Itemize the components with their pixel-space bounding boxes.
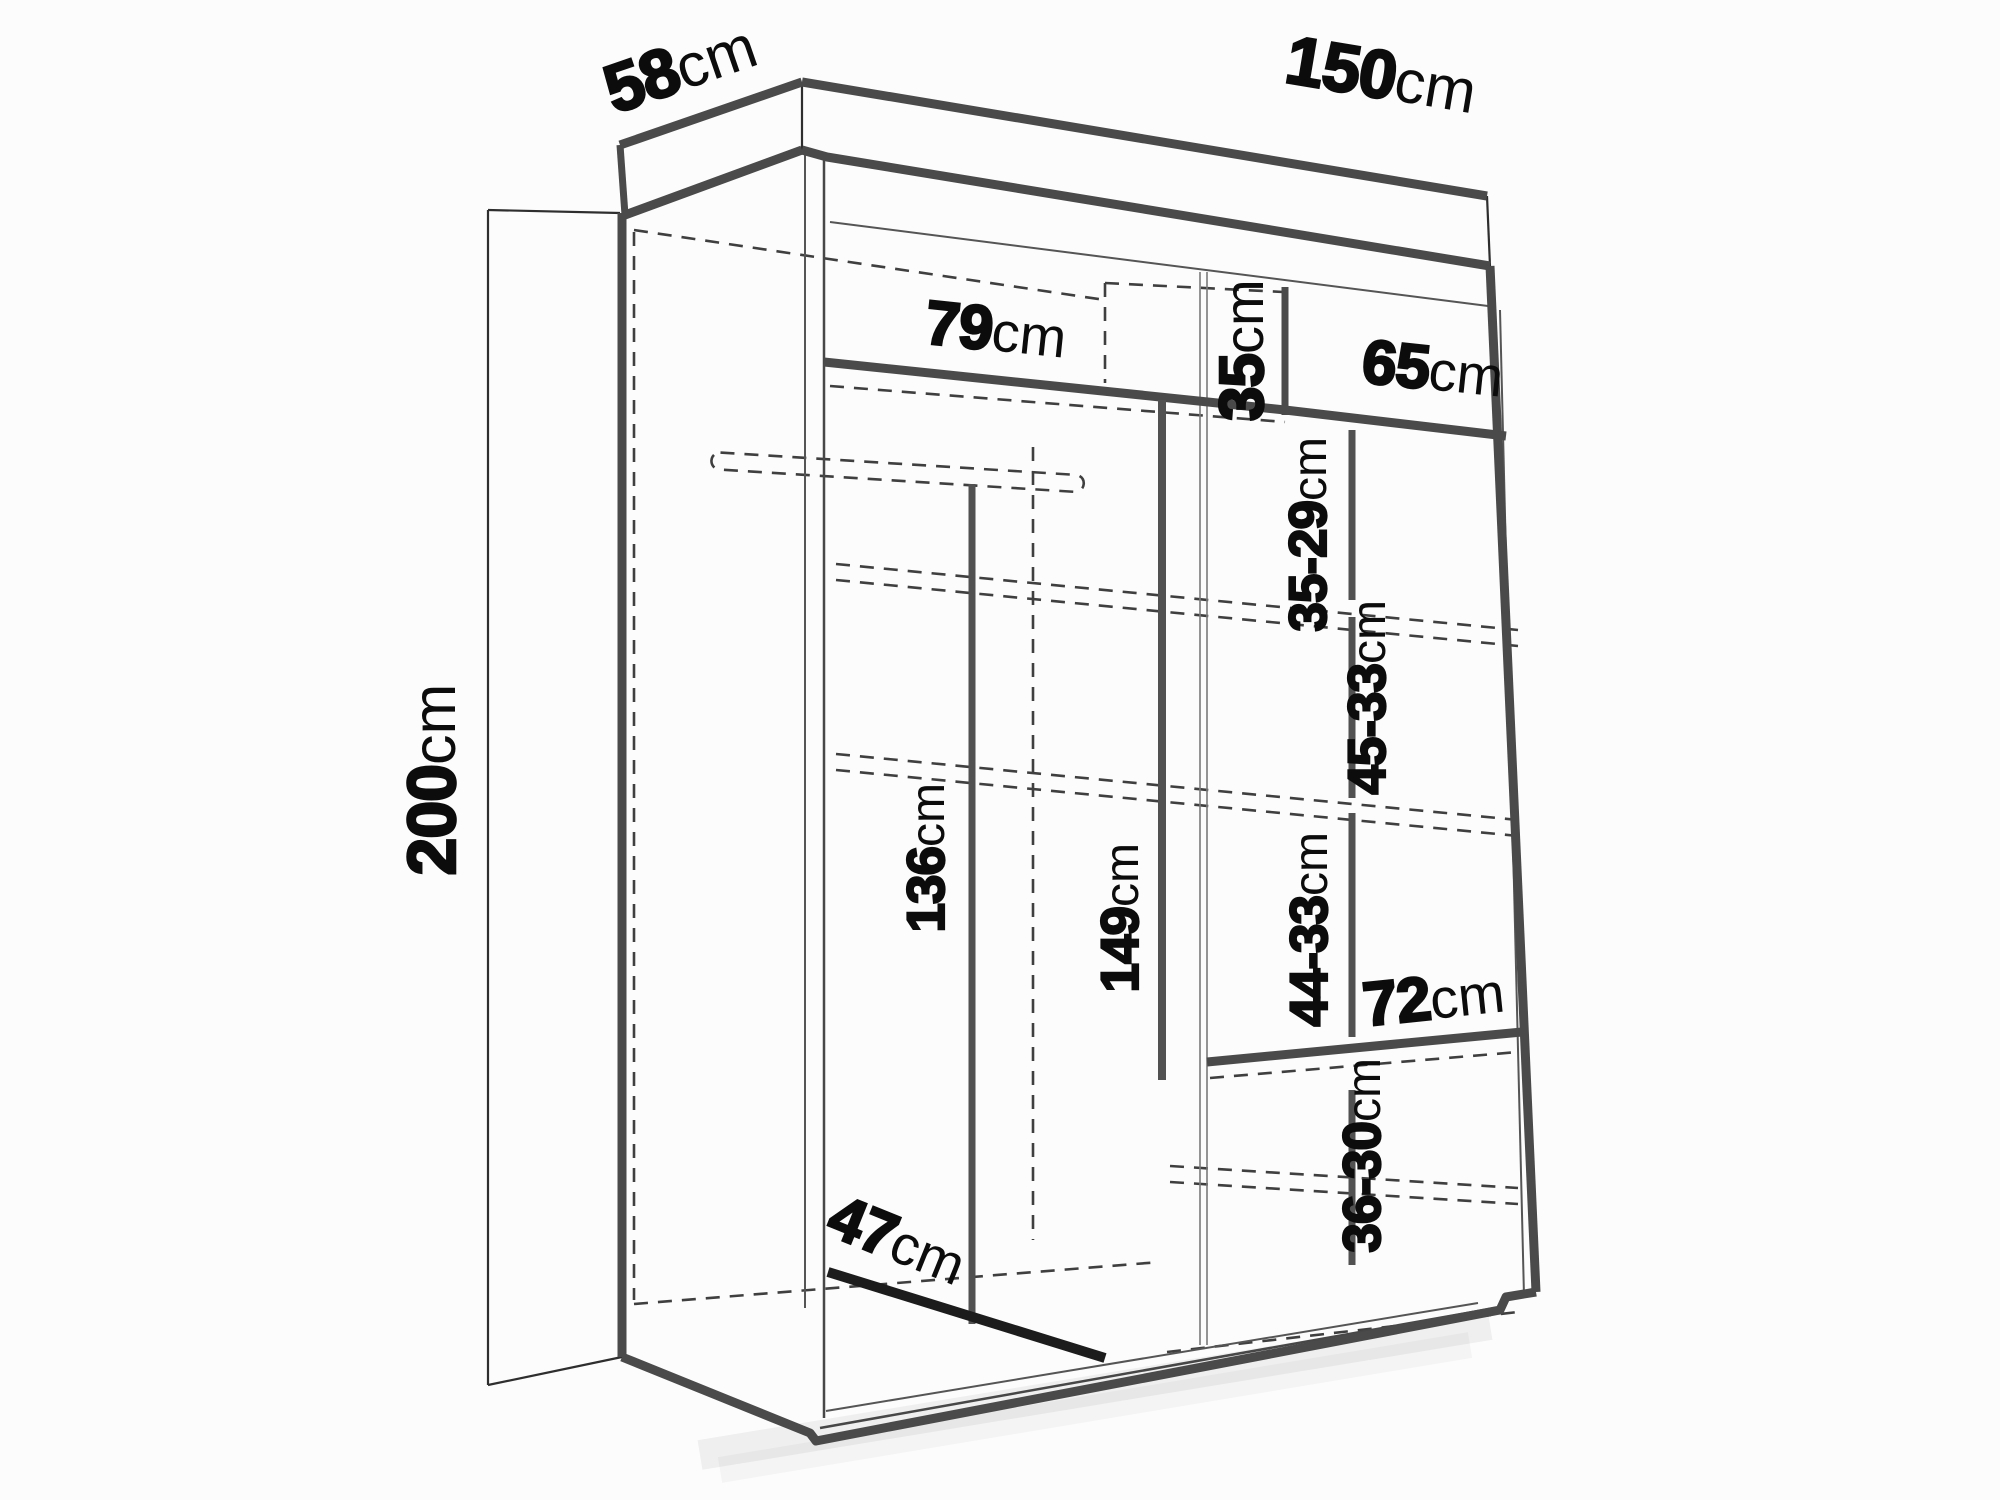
diagram-canvas: 58 cm 150 cm 200 cm 79 cm 35 cm 65 cm 35… (0, 0, 2000, 1500)
top-slab-left-end (620, 145, 625, 215)
wardrobe-dimension-diagram: 58 cm 150 cm 200 cm 79 cm 35 cm 65 cm 35… (0, 0, 2000, 1500)
label-divider-149-value: 149 (1091, 907, 1150, 992)
height-plane-bottom-edge (488, 1357, 622, 1385)
ceiling-back-edge (634, 230, 1105, 300)
label-gap-44-33-unit: cm (1285, 832, 1338, 896)
top-shelf-right (1285, 410, 1506, 436)
label-shelf-65-value: 65 (1359, 327, 1433, 403)
label-cubby-35-unit: cm (1212, 279, 1275, 354)
label-shelf-79: 79 cm (922, 288, 1070, 371)
label-gap-44-33: 44-33 cm (1280, 832, 1339, 1027)
dim-line-47 (828, 1272, 1105, 1358)
label-divider-149: 149 cm (1091, 843, 1150, 992)
label-cubby-35-value: 35 (1208, 354, 1277, 421)
label-rod-136-unit: cm (902, 783, 955, 847)
label-shelf-72-value: 72 (1360, 964, 1434, 1040)
label-shelf-72: 72 cm (1360, 956, 1508, 1039)
label-divider-149-unit: cm (1096, 843, 1149, 907)
label-width-150: 150 cm (1281, 22, 1483, 129)
label-width-150-value: 150 (1281, 22, 1402, 115)
label-height-200-unit: cm (400, 684, 468, 765)
label-height-200: 200 cm (394, 684, 470, 876)
label-gap-36-30-value: 36-30 (1333, 1122, 1392, 1253)
shelf-72 (1207, 1032, 1522, 1062)
label-gap-45-33-unit: cm (1343, 600, 1396, 664)
label-gap-44-33-value: 44-33 (1280, 896, 1339, 1027)
top-slab-lower-left-edge (625, 150, 802, 215)
top-slab-lower-front-edge (802, 150, 1490, 266)
label-depth-58: 58 cm (595, 6, 766, 128)
carcass-edges (620, 82, 1536, 1441)
front-right-edge (1490, 266, 1536, 1292)
label-gap-35-29-value: 35-29 (1279, 501, 1338, 632)
label-cubby-35: 35 cm (1208, 279, 1277, 421)
height-plane-top-edge (488, 210, 620, 213)
label-shelf-79-value: 79 (922, 288, 996, 364)
shelf-row1-front-edge (836, 580, 1518, 646)
label-gap-35-29-unit: cm (1284, 437, 1337, 501)
label-gap-36-30: 36-30 cm (1333, 1058, 1392, 1253)
label-shelf-72-unit: cm (1427, 960, 1508, 1030)
label-shelf-65: 65 cm (1359, 327, 1507, 410)
label-gap-45-33-value: 45-33 (1338, 664, 1397, 795)
label-rod-136-value: 136 (897, 847, 956, 932)
label-gap-35-29: 35-29 cm (1279, 437, 1338, 632)
hanging-rod (711, 452, 1084, 492)
floor-shadow (700, 1325, 1490, 1470)
label-height-200-value: 200 (394, 765, 470, 875)
label-gap-45-33: 45-33 cm (1338, 600, 1397, 795)
shelf-row1-back-edge (836, 564, 1518, 630)
label-gap-36-30-unit: cm (1338, 1058, 1391, 1122)
label-shelf-65-unit: cm (1426, 338, 1507, 408)
dimension-labels: 58 cm 150 cm 200 cm 79 cm 35 cm 65 cm 35… (394, 6, 1508, 1299)
label-width-150-unit: cm (1390, 46, 1481, 126)
top-slab-right-end (1487, 196, 1490, 266)
label-shelf-79-unit: cm (989, 299, 1070, 369)
label-rod-136: 136 cm (897, 783, 956, 932)
